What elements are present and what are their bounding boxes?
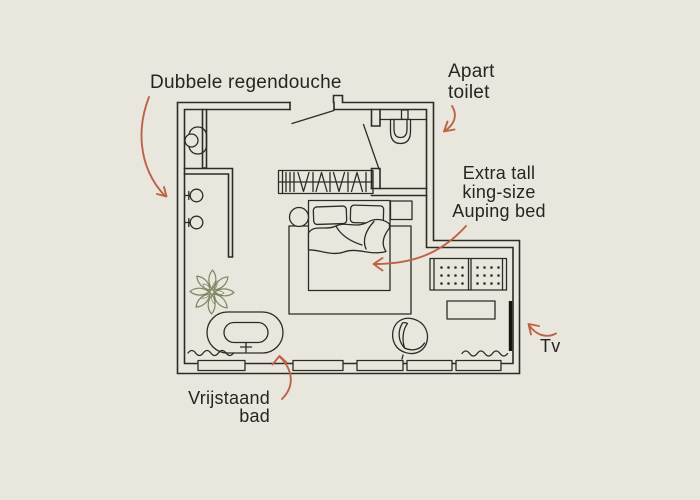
floorplan-svg <box>0 0 700 500</box>
arrow-shower <box>142 97 167 197</box>
toilet-icon <box>380 110 427 144</box>
arrow-bath <box>273 356 291 399</box>
label-double-rain-shower-text: Dubbele regendouche <box>150 72 342 93</box>
bench-dots <box>440 266 500 285</box>
windows <box>198 361 501 371</box>
label-separate-toilet-line1: Apart <box>448 61 495 82</box>
label-auping-bed-line3: Auping bed <box>441 202 557 221</box>
label-freestanding-bath: Vrijstaand bad <box>150 389 270 425</box>
label-freestanding-bath-line2: bad <box>150 407 270 425</box>
bathtub-icon <box>207 312 283 353</box>
shower-heads-icon <box>185 189 203 229</box>
rug-icon <box>462 351 508 356</box>
armchair-icon <box>393 318 428 359</box>
bench-icon <box>430 259 507 291</box>
label-auping-bed: Extra tall king-size Auping bed <box>441 164 557 221</box>
stool-icon <box>290 208 309 227</box>
arrow-toilet <box>444 106 455 132</box>
bath-mat-icon <box>188 351 234 356</box>
label-separate-toilet-line2: toilet <box>448 82 495 103</box>
wardrobe-icon <box>279 171 374 194</box>
label-auping-bed-line2: king-size <box>441 183 557 202</box>
floorplan-diagram: Dubbele regendouche Apart toilet Extra t… <box>0 0 700 500</box>
label-auping-bed-line1: Extra tall <box>441 164 557 183</box>
arrow-tv <box>529 324 557 336</box>
plant-icon <box>190 270 234 314</box>
bed-icon <box>309 201 391 291</box>
nightstand-icon <box>391 201 413 220</box>
label-tv: Tv <box>540 336 561 357</box>
label-separate-toilet: Apart toilet <box>448 61 495 103</box>
label-freestanding-bath-line1: Vrijstaand <box>150 389 270 407</box>
entrance-door-icon <box>292 111 334 124</box>
toilet-door-icon <box>364 125 380 170</box>
label-tv-text: Tv <box>540 336 561 356</box>
label-double-rain-shower: Dubbele regendouche <box>150 72 342 94</box>
side-table-icon <box>447 301 495 319</box>
